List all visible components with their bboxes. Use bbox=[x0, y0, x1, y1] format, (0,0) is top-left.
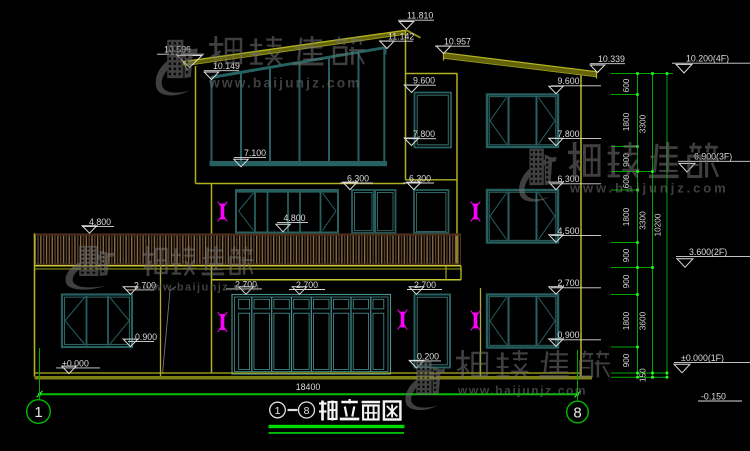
svg-text:900: 900 bbox=[621, 248, 631, 262]
svg-text:8: 8 bbox=[573, 405, 581, 422]
svg-text:1800: 1800 bbox=[621, 112, 631, 131]
svg-text:11.142: 11.142 bbox=[388, 32, 414, 42]
svg-text:9.600: 9.600 bbox=[413, 76, 435, 86]
svg-text:www.baijunjz.com: www.baijunjz.com bbox=[569, 181, 729, 196]
svg-text:www.baijunjz.com: www.baijunjz.com bbox=[142, 282, 260, 294]
svg-text:11.810: 11.810 bbox=[407, 11, 433, 21]
svg-text:10.200(4F): 10.200(4F) bbox=[686, 54, 729, 64]
svg-text:1: 1 bbox=[275, 405, 281, 417]
svg-text:3.600(2F): 3.600(2F) bbox=[689, 247, 727, 257]
svg-text:0.900: 0.900 bbox=[135, 332, 157, 342]
svg-text:www.baijunjz.com: www.baijunjz.com bbox=[208, 76, 362, 91]
svg-text:1: 1 bbox=[34, 404, 42, 421]
svg-text:3300: 3300 bbox=[638, 211, 648, 230]
svg-text:0.200: 0.200 bbox=[417, 351, 439, 361]
svg-text:8: 8 bbox=[304, 405, 310, 417]
svg-text:www.baijunjz.com: www.baijunjz.com bbox=[457, 384, 587, 398]
svg-text:10200: 10200 bbox=[653, 213, 663, 236]
svg-text:7.800: 7.800 bbox=[558, 129, 580, 139]
svg-text:150: 150 bbox=[638, 368, 648, 382]
svg-text:-0.150: -0.150 bbox=[701, 391, 726, 401]
svg-text:4.800: 4.800 bbox=[284, 213, 306, 223]
svg-text:2.700: 2.700 bbox=[296, 280, 318, 290]
svg-text:3600: 3600 bbox=[638, 311, 648, 330]
svg-text:1800: 1800 bbox=[621, 207, 631, 226]
svg-text:600: 600 bbox=[621, 78, 631, 92]
svg-text:3300: 3300 bbox=[638, 114, 648, 133]
svg-text:900: 900 bbox=[621, 274, 631, 288]
svg-text:900: 900 bbox=[621, 353, 631, 367]
svg-text:1800: 1800 bbox=[621, 311, 631, 330]
svg-text:7.100: 7.100 bbox=[244, 148, 266, 158]
svg-text:9.600: 9.600 bbox=[558, 76, 580, 86]
svg-text:18400: 18400 bbox=[296, 382, 321, 392]
svg-text:2.700: 2.700 bbox=[414, 280, 436, 290]
svg-text:±0.000(1F): ±0.000(1F) bbox=[681, 353, 724, 363]
svg-text:10.957: 10.957 bbox=[444, 37, 471, 47]
svg-text:10.339: 10.339 bbox=[598, 54, 625, 64]
